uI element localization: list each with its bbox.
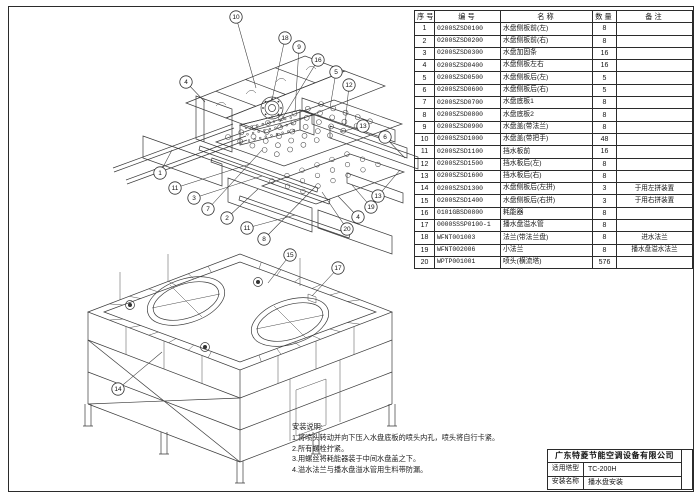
bom-cell [617,207,693,219]
bom-cell: 水盘底板1 [501,97,593,109]
title-block-side-cell [682,450,693,490]
bom-cell: 8 [593,232,617,244]
bom-cell: 16 [415,207,435,219]
installation-notes: 安装说明: 1.将喷头转动并向下压入水盘底板的喷头内孔，喷头将自行卡紧。2.所有… [292,422,499,476]
balloon-2: 2 [221,189,258,224]
table-row: 18WFNT001003法兰(带法兰盘)8进水法兰 [415,232,693,244]
bom-cell: 9 [415,121,435,133]
bom-cell [617,97,693,109]
nozzle-holes-plate2 [270,152,381,194]
bom-table: 序号编号名称数量备注 10200SZSD0100水盘侧板前(左)820200SZ… [414,10,693,269]
note-line: 2.所有螺栓拧紧。 [292,444,499,455]
balloon-11: 11 [241,215,295,234]
pan-flange-covers [126,278,263,352]
svg-text:11: 11 [244,225,251,232]
bom-cell: 8 [415,109,435,121]
table-row: 30200SZSD0300水盘加固条16 [415,47,693,59]
bom-cell: 于用右拼装置 [617,195,693,207]
bom-cell: WFNT002006 [435,244,501,256]
bom-cell: 16 [593,60,617,72]
svg-text:10: 10 [232,14,240,21]
svg-text:13: 13 [359,123,367,130]
svg-text:15: 15 [286,252,294,259]
bom-cell [617,84,693,96]
table-row: 19WFNT002006小法兰8播水盘溢水法兰 [415,244,693,256]
bom-header-1: 编号 [435,11,501,23]
bom-cell: 2 [415,35,435,47]
balloon-18: 18 [272,32,291,100]
table-row: 170000SSSP0100-1播水盘溢水管8 [415,220,693,232]
bom-cell: 0101GBSD0800 [435,207,501,219]
svg-text:6: 6 [383,134,387,141]
bom-cell: 0200SZSD1100 [435,146,501,158]
bom-cell: 5 [593,72,617,84]
bom-cell: 于用左拼装置 [617,183,693,195]
svg-text:14: 14 [114,386,122,393]
table-row: 50200SZSD0500水盘侧板后(左)5 [415,72,693,84]
note-line: 4.溢水法兰与播水盘溢水管用生料带防漏。 [292,465,499,476]
bom-cell: 0200SZSD0600 [435,84,501,96]
svg-text:3: 3 [192,195,196,202]
bom-cell: 水盘加固条 [501,47,593,59]
bom-cell: 0000SSSP0100-1 [435,220,501,232]
bom-cell: 水盘侧板后(左拼) [501,183,593,195]
bom-cell: 8 [593,207,617,219]
balloon-13: 13 [340,120,369,132]
bom-cell: 喷头(横流塔) [501,256,593,268]
bom-cell: 8 [593,220,617,232]
company-name: 广东特菱节能空调设备有限公司 [548,450,682,463]
inlet-flange [261,97,283,119]
bom-cell: 0200SZSD0100 [435,23,501,35]
balloon-10: 10 [230,11,256,88]
bom-cell [617,47,693,59]
balloon-17: 17 [312,262,344,296]
svg-text:1: 1 [158,170,162,177]
bom-cell: 0200SZSD1300 [435,183,501,195]
notes-title: 安装说明: [292,422,499,433]
balloon-11: 11 [169,164,250,194]
cell-opening-left [141,268,231,335]
balloon-13: 13 [372,170,400,202]
bom-cell: WFNT001003 [435,232,501,244]
table-row: 40200SZSD0400水盘侧板左右16 [415,60,693,72]
bom-cell [617,158,693,170]
tower-model-label: 适用塔型 [548,463,584,476]
svg-text:5: 5 [334,69,338,76]
bom-cell: 播水盘溢水管 [501,220,593,232]
bom-header-4: 备注 [617,11,693,23]
cell-opening-right [245,289,335,356]
svg-text:16: 16 [314,57,322,64]
bom-cell: 水盘侧板前(左) [501,23,593,35]
note-line: 1.将喷头转动并向下压入水盘底板的喷头内孔，喷头将自行卡紧。 [292,433,499,444]
bom-cell: WPTP001001 [435,256,501,268]
table-row: 160101GBSD0800耗能器8 [415,207,693,219]
bom-cell: 挡水板前 [501,146,593,158]
table-row: 20200SZSD0200水盘侧板前(右)8 [415,35,693,47]
bom-cell: 水盘侧板后(左) [501,72,593,84]
tower-model-value: TC-200H [584,463,682,476]
bom-cell: 0200SZSD0400 [435,60,501,72]
bom-cell: 8 [593,170,617,182]
bom-cell: 挡水板后(右) [501,170,593,182]
bom-cell: 0200SZSD1500 [435,158,501,170]
note-line: 3.用螺丝将耗能器装于中间水盘盖之下。 [292,454,499,465]
table-row: 20WPTP001001喷头(横流塔)576 [415,256,693,268]
svg-text:20: 20 [343,226,351,233]
bom-cell: 3 [593,183,617,195]
svg-text:4: 4 [184,79,188,86]
bom-cell: 水盘侧板后(右) [501,84,593,96]
bom-cell: 8 [593,244,617,256]
svg-text:13: 13 [374,193,382,200]
bom-cell: 0200SZSD0800 [435,109,501,121]
bom-cell: 挡水板后(左) [501,158,593,170]
bom-cell: 8 [593,97,617,109]
bom-cell: 水盘盖(带法兰) [501,121,593,133]
svg-text:8: 8 [262,236,266,243]
bom-cell: 0200SZSD1400 [435,195,501,207]
bom-cell: 5 [415,72,435,84]
bom-cell [617,35,693,47]
bom-cell: 播水盘溢水法兰 [617,244,693,256]
bom-cell: 48 [593,133,617,145]
bom-cell: 10 [415,133,435,145]
bom-cell: 14 [415,183,435,195]
svg-text:9: 9 [297,44,301,51]
bom-cell [617,256,693,268]
balloon-4: 4 [338,196,364,223]
bom-cell: 0200SZSD0300 [435,47,501,59]
bom-header-0: 序号 [415,11,435,23]
bom-cell: 12 [415,158,435,170]
bom-cell [617,146,693,158]
bom-cell: 4 [415,60,435,72]
bom-cell: 水盘侧板前(右) [501,35,593,47]
bom-cell [617,170,693,182]
bom-cell: 3 [415,47,435,59]
bom-cell: 8 [593,23,617,35]
svg-text:17: 17 [334,265,342,272]
bom-cell: 水盘底板2 [501,109,593,121]
bom-cell: 8 [593,109,617,121]
bom-cell: 法兰(带法兰盘) [501,232,593,244]
bom-cell: 0200SZSD0200 [435,35,501,47]
bom-cell: 水盘侧板后(右拼) [501,195,593,207]
bom-cell: 7 [415,97,435,109]
bom-cell: 8 [593,35,617,47]
bom-cell: 15 [415,195,435,207]
bom-cell: 3 [593,195,617,207]
svg-text:19: 19 [367,204,375,211]
bom-cell: 19 [415,244,435,256]
bom-header-3: 数量 [593,11,617,23]
bom-cell: 13 [415,170,435,182]
bom-cell: 0200SZSD0500 [435,72,501,84]
svg-text:12: 12 [345,82,353,89]
bom-cell: 11 [415,146,435,158]
table-row: 60200SZSD0600水盘侧板后(右)5 [415,84,693,96]
table-row: 120200SZSD1500挡水板后(左)8 [415,158,693,170]
bom-cell: 16 [593,146,617,158]
table-row: 100200SZSD1000水盘盖(带把手)48 [415,133,693,145]
table-row: 150200SZSD1400水盘侧板后(右拼)3于用右拼装置 [415,195,693,207]
cover-handles [216,66,316,106]
drawing-sheet: 101891651241361113721181319420151714 序号编… [0,0,700,495]
install-name-label: 安装名称 [548,476,584,489]
bom-cell: 6 [415,84,435,96]
bom-cell: 1 [415,23,435,35]
bom-cell: 水盘盖(带把手) [501,133,593,145]
table-row: 70200SZSD0700水盘底板18 [415,97,693,109]
table-row: 140200SZSD1300水盘侧板后(左拼)3于用左拼装置 [415,183,693,195]
bom-cell [617,72,693,84]
bom-cell: 8 [593,121,617,133]
svg-text:11: 11 [172,185,179,192]
balloon-5: 5 [330,66,342,108]
bom-cell [617,60,693,72]
svg-text:7: 7 [206,206,210,213]
svg-text:2: 2 [225,215,229,222]
table-row: 110200SZSD1100挡水板前16 [415,146,693,158]
balloon-15: 15 [268,249,296,283]
bom-cell: 576 [593,256,617,268]
bom-cell: 耗能器 [501,207,593,219]
bom-cell: 8 [593,158,617,170]
bom-cell: 0200SZSD1000 [435,133,501,145]
balloon-4: 4 [180,76,205,102]
bom-cell: 进水法兰 [617,232,693,244]
exploded-view [113,56,418,254]
bom-header-2: 名称 [501,11,593,23]
bom-cell: 5 [593,84,617,96]
bom-cell: 0200SZSD1600 [435,170,501,182]
bom-cell: 16 [593,47,617,59]
balloon-12: 12 [343,79,355,126]
table-row: 90200SZSD0900水盘盖(带法兰)8 [415,121,693,133]
bom-cell: 小法兰 [501,244,593,256]
bom-cell: 18 [415,232,435,244]
title-block: 广东特菱节能空调设备有限公司 适用塔型 TC-200H 安装名称 播水盘安装 [547,449,693,490]
bom-cell: 0200SZSD0900 [435,121,501,133]
bom-cell [617,23,693,35]
table-row: 130200SZSD1600挡水板后(右)8 [415,170,693,182]
bom-cell: 0200SZSD0700 [435,97,501,109]
svg-text:4: 4 [356,214,360,221]
bom-cell: 水盘侧板左右 [501,60,593,72]
bom-cell: 20 [415,256,435,268]
bom-cell [617,133,693,145]
table-row: 80200SZSD0800水盘底板28 [415,109,693,121]
table-row: 10200SZSD0100水盘侧板前(左)8 [415,23,693,35]
install-name-value: 播水盘安装 [584,476,682,489]
svg-text:18: 18 [281,35,289,42]
bom-header-row: 序号编号名称数量备注 [415,11,693,23]
bom-cell [617,121,693,133]
bom-cell: 17 [415,220,435,232]
balloon-20: 20 [322,192,353,235]
bom-cell [617,109,693,121]
bom-cell [617,220,693,232]
